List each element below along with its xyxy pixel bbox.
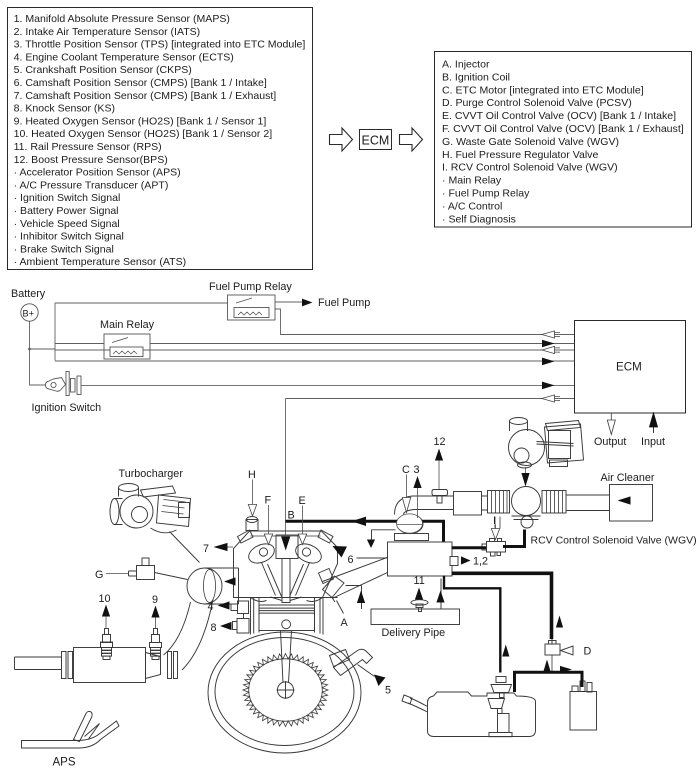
svg-text:Input: Input bbox=[641, 436, 665, 448]
svg-text:10. Heated Oxygen Sensor (HO2S: 10. Heated Oxygen Sensor (HO2S) [Bank 1 … bbox=[14, 128, 273, 140]
svg-text:9: 9 bbox=[152, 594, 158, 606]
svg-text:D. Purge Control Solenoid Valv: D. Purge Control Solenoid Valve (PCSV) bbox=[442, 97, 632, 109]
svg-text:8: 8 bbox=[211, 622, 217, 634]
svg-text:· Ambient Temperature Sensor (: · Ambient Temperature Sensor (ATS) bbox=[14, 256, 187, 268]
svg-text:· Inhibitor Switch Signal: · Inhibitor Switch Signal bbox=[14, 231, 124, 243]
svg-text:E: E bbox=[299, 495, 306, 507]
svg-text:11. Rail Pressure Sensor (RPS): 11. Rail Pressure Sensor (RPS) bbox=[14, 141, 162, 153]
svg-text:1. Manifold Absolute Pressure: 1. Manifold Absolute Pressure Sensor (MA… bbox=[14, 13, 230, 25]
svg-text:9. Heated Oxygen Sensor (HO2S): 9. Heated Oxygen Sensor (HO2S) [Bank 1 /… bbox=[14, 115, 267, 127]
svg-text:4. Engine Coolant Temperature: 4. Engine Coolant Temperature Sensor (EC… bbox=[14, 51, 234, 63]
svg-text:· Fuel Pump Relay: · Fuel Pump Relay bbox=[442, 188, 530, 200]
svg-text:A: A bbox=[341, 617, 349, 629]
svg-text:Battery: Battery bbox=[11, 288, 46, 300]
svg-text:Delivery Pipe: Delivery Pipe bbox=[382, 627, 446, 639]
svg-text:Main Relay: Main Relay bbox=[100, 319, 155, 331]
svg-text:ECM: ECM bbox=[362, 133, 390, 147]
svg-text:G: G bbox=[95, 569, 103, 581]
svg-text:5. Crankshaft Position Sensor: 5. Crankshaft Position Sensor (CKPS) bbox=[14, 64, 192, 76]
svg-text:Fuel Pump: Fuel Pump bbox=[318, 297, 370, 309]
svg-text:RCV Control Solenoid Valve (WG: RCV Control Solenoid Valve (WGV) bbox=[531, 535, 697, 547]
svg-text:· Main Relay: · Main Relay bbox=[442, 175, 502, 187]
svg-text:· Battery Power Signal: · Battery Power Signal bbox=[14, 205, 119, 217]
svg-text:5: 5 bbox=[385, 685, 391, 697]
svg-text:3. Throttle Position Sensor (T: 3. Throttle Position Sensor (TPS) [integ… bbox=[14, 39, 306, 51]
svg-text:F. CVVT Oil Control Valve (OCV: F. CVVT Oil Control Valve (OCV) [Bank 1 … bbox=[442, 123, 684, 135]
svg-text:D: D bbox=[584, 646, 592, 658]
svg-text:7: 7 bbox=[203, 543, 209, 555]
svg-text:ECM: ECM bbox=[616, 361, 642, 374]
svg-text:8. Knock Sensor (KS): 8. Knock Sensor (KS) bbox=[14, 103, 115, 115]
svg-text:· Brake Switch Signal: · Brake Switch Signal bbox=[14, 243, 114, 255]
svg-text:H. Fuel Pressure Regulator Val: H. Fuel Pressure Regulator Valve bbox=[442, 149, 598, 161]
svg-text:· A/C Control: · A/C Control bbox=[442, 200, 502, 212]
svg-text:· A/C Pressure Transducer (APT: · A/C Pressure Transducer (APT) bbox=[14, 179, 169, 191]
svg-text:· Self Diagnosis: · Self Diagnosis bbox=[442, 213, 516, 225]
svg-text:G. Waste Gate Solenoid Valve (: G. Waste Gate Solenoid Valve (WGV) bbox=[442, 136, 619, 148]
svg-text:2. Intake Air Temperature Sens: 2. Intake Air Temperature Sensor (IATS) bbox=[14, 26, 201, 38]
svg-text:12: 12 bbox=[434, 436, 446, 448]
svg-text:B. Ignition Coil: B. Ignition Coil bbox=[442, 71, 510, 83]
svg-text:· Accelerator Position Sensor: · Accelerator Position Sensor (APS) bbox=[14, 167, 181, 179]
svg-text:F: F bbox=[265, 495, 272, 507]
svg-text:3: 3 bbox=[414, 464, 420, 476]
svg-text:C. ETC Motor [integrated into: C. ETC Motor [integrated into ETC Module… bbox=[442, 84, 644, 96]
svg-text:10: 10 bbox=[99, 593, 111, 605]
svg-text:4: 4 bbox=[208, 601, 214, 613]
svg-text:I. RCV Control Solenoid Valve: I. RCV Control Solenoid Valve (WGV) bbox=[442, 162, 618, 174]
svg-text:A. Injector: A. Injector bbox=[442, 59, 490, 71]
svg-text:6: 6 bbox=[348, 554, 354, 566]
svg-text:· Ignition Switch Signal: · Ignition Switch Signal bbox=[14, 192, 121, 204]
svg-text:C: C bbox=[402, 464, 410, 476]
svg-text:B: B bbox=[288, 510, 295, 522]
svg-text:H: H bbox=[248, 469, 256, 481]
svg-text:Ignition Switch: Ignition Switch bbox=[32, 402, 102, 414]
svg-text:Fuel Pump Relay: Fuel Pump Relay bbox=[209, 281, 292, 293]
svg-text:6. Camshaft Position Sensor (C: 6. Camshaft Position Sensor (CMPS) [Bank… bbox=[14, 77, 267, 89]
svg-text:E. CVVT Oil Control Valve (OCV: E. CVVT Oil Control Valve (OCV) [Bank 1 … bbox=[442, 110, 676, 122]
svg-text:11: 11 bbox=[414, 575, 425, 587]
svg-text:1,2: 1,2 bbox=[473, 556, 488, 568]
svg-text:· Vehicle Speed Signal: · Vehicle Speed Signal bbox=[14, 218, 120, 230]
svg-text:B+: B+ bbox=[23, 309, 35, 319]
svg-text:Turbocharger: Turbocharger bbox=[119, 468, 184, 480]
svg-text:7. Camshaft Position Sensor (C: 7. Camshaft Position Sensor (CMPS) [Bank… bbox=[14, 90, 277, 102]
svg-text:Air Cleaner: Air Cleaner bbox=[601, 472, 655, 484]
svg-text:Output: Output bbox=[594, 436, 626, 448]
svg-text:12. Boost Pressure Sensor(BPS): 12. Boost Pressure Sensor(BPS) bbox=[14, 154, 168, 166]
svg-text:APS: APS bbox=[53, 757, 76, 769]
